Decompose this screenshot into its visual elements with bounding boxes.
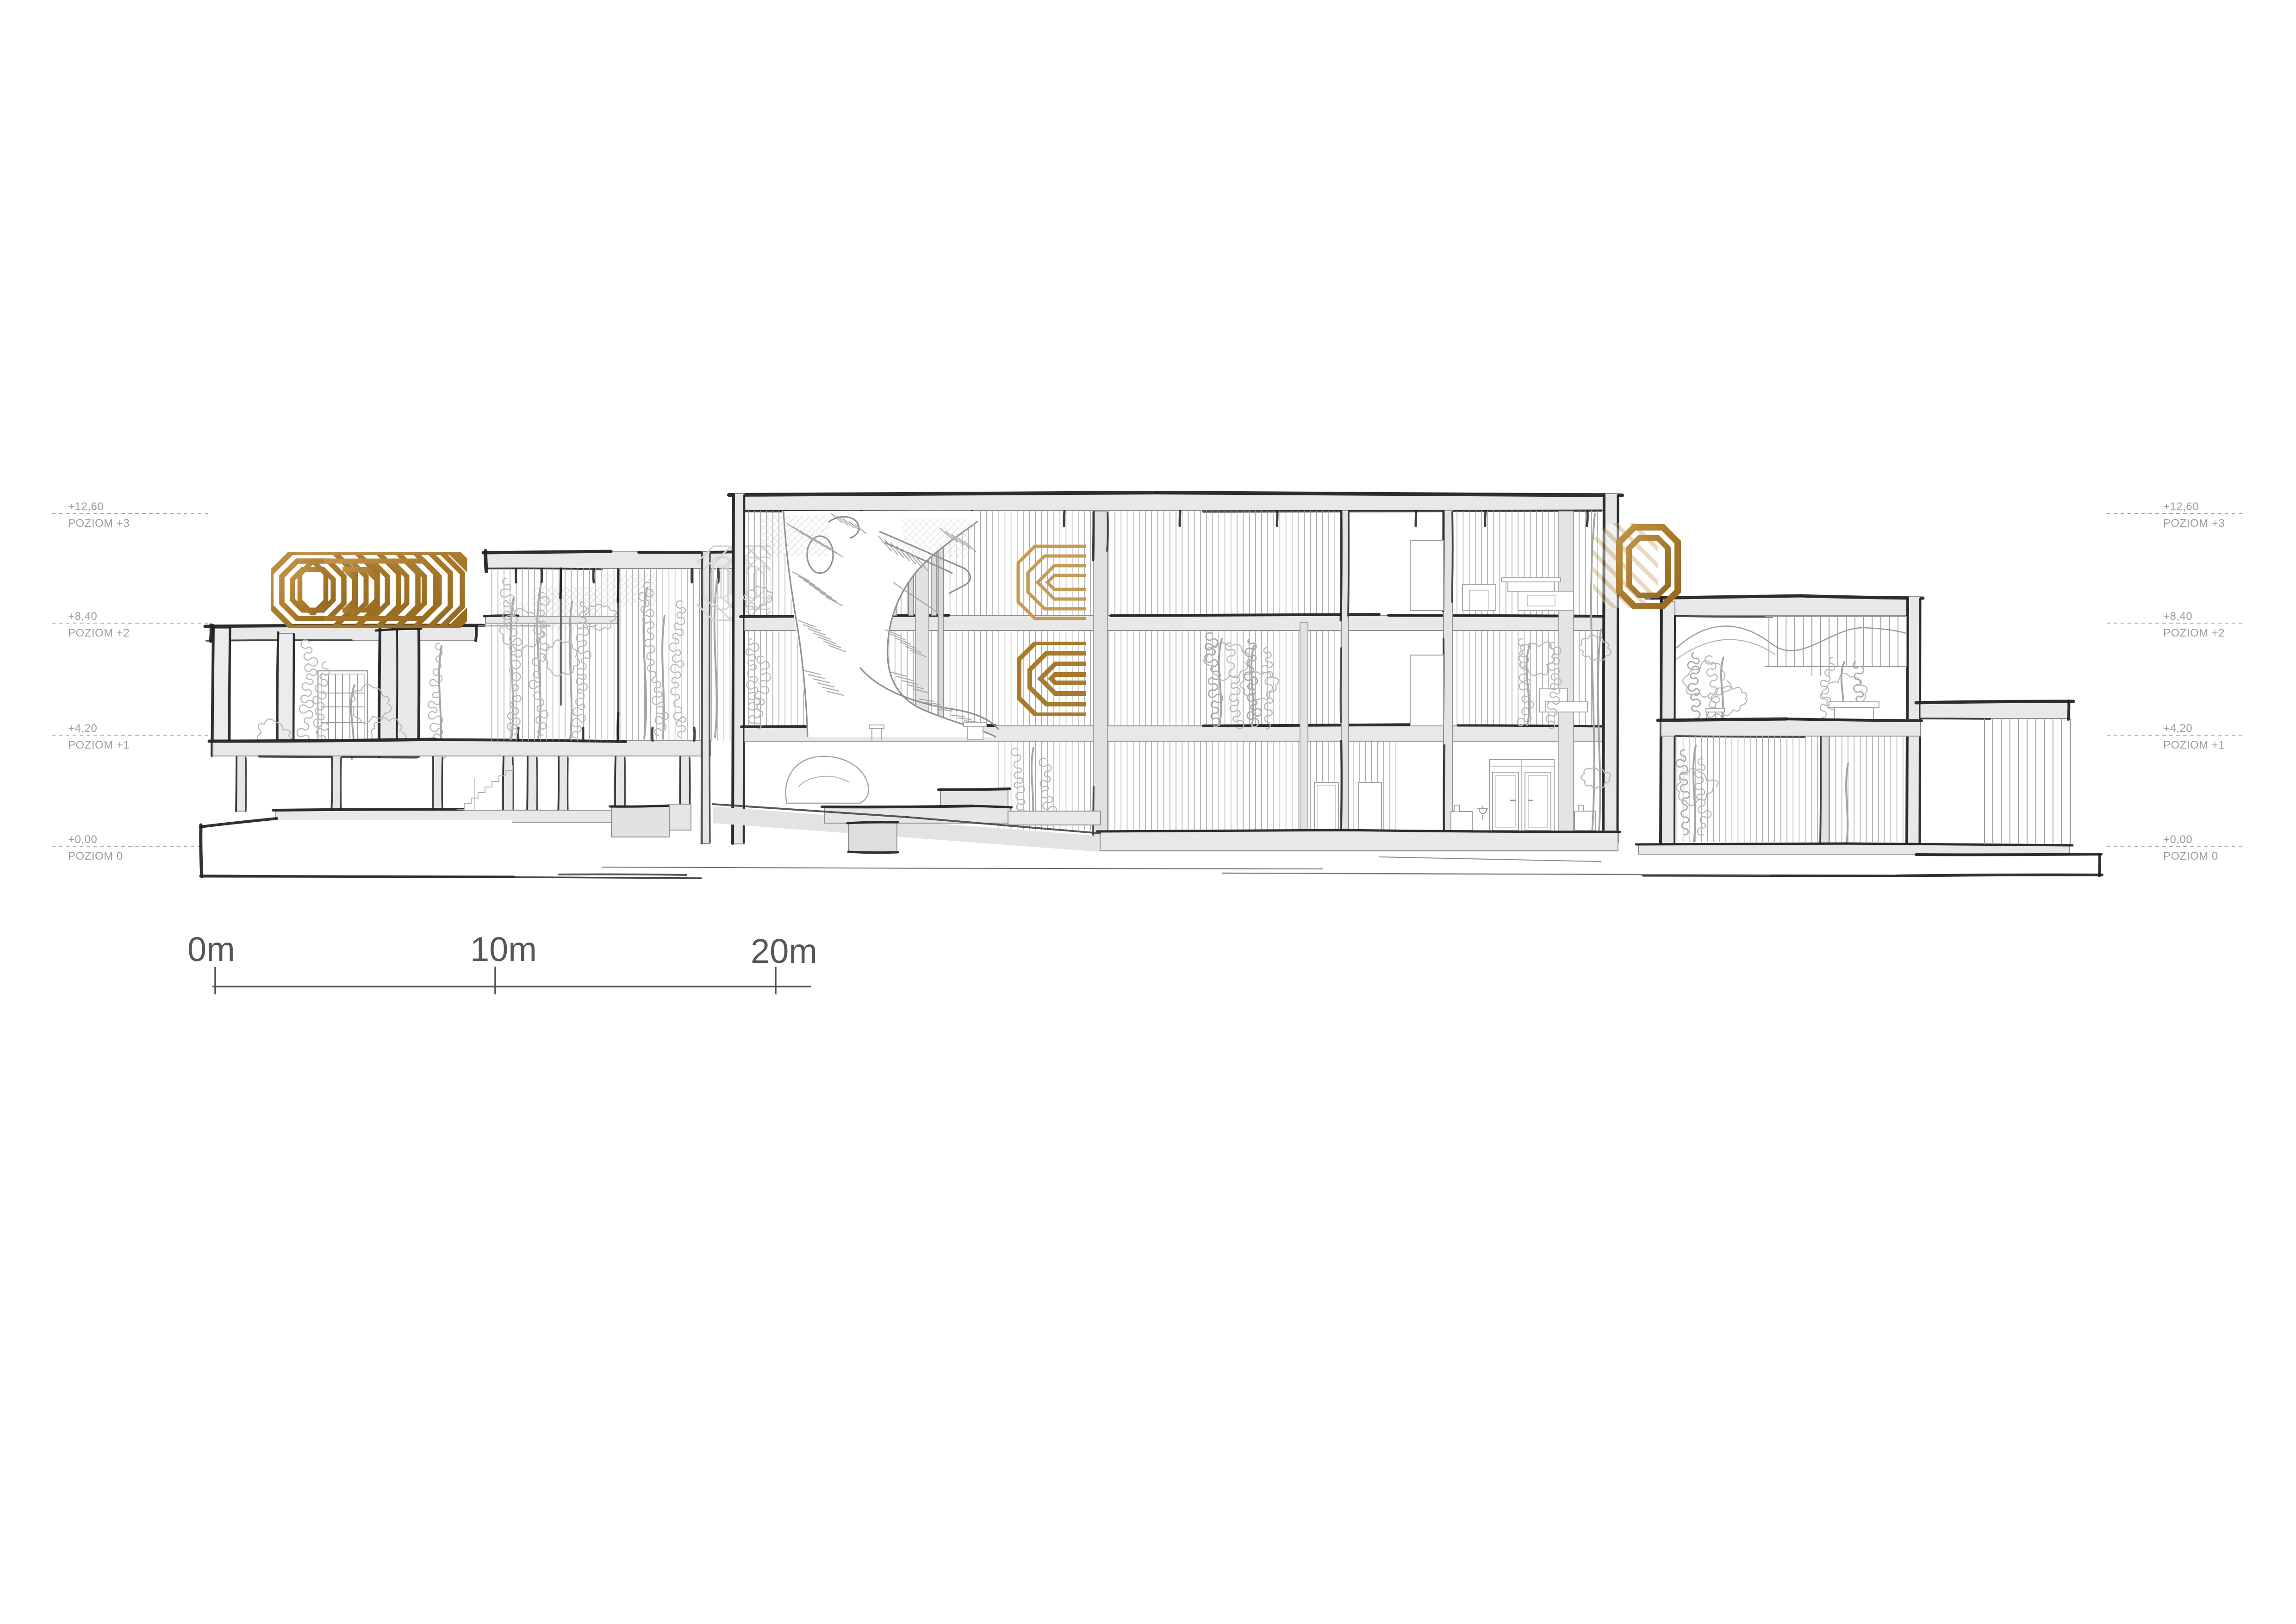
- svg-text:+12,60: +12,60: [2163, 500, 2199, 513]
- svg-text:POZIOM +3: POZIOM +3: [2163, 517, 2225, 530]
- svg-text:POZIOM 0: POZIOM 0: [68, 850, 123, 862]
- svg-text:+4,20: +4,20: [68, 722, 97, 735]
- svg-text:+8,40: +8,40: [68, 610, 97, 623]
- svg-text:+0,00: +0,00: [2163, 833, 2192, 846]
- svg-text:POZIOM +1: POZIOM +1: [2163, 739, 2225, 751]
- svg-text:POZIOM +3: POZIOM +3: [68, 517, 130, 530]
- svg-text:0m: 0m: [187, 930, 235, 968]
- svg-text:20m: 20m: [751, 932, 817, 970]
- svg-text:POZIOM 0: POZIOM 0: [2163, 850, 2218, 862]
- svg-text:+4,20: +4,20: [2163, 722, 2192, 735]
- svg-text:POZIOM +2: POZIOM +2: [68, 627, 130, 639]
- svg-text:POZIOM +1: POZIOM +1: [68, 739, 130, 751]
- svg-text:10m: 10m: [470, 930, 537, 968]
- svg-text:+8,40: +8,40: [2163, 610, 2192, 623]
- svg-text:+12,60: +12,60: [68, 500, 104, 513]
- svg-text:POZIOM +2: POZIOM +2: [2163, 627, 2225, 639]
- svg-text:+0,00: +0,00: [68, 833, 97, 846]
